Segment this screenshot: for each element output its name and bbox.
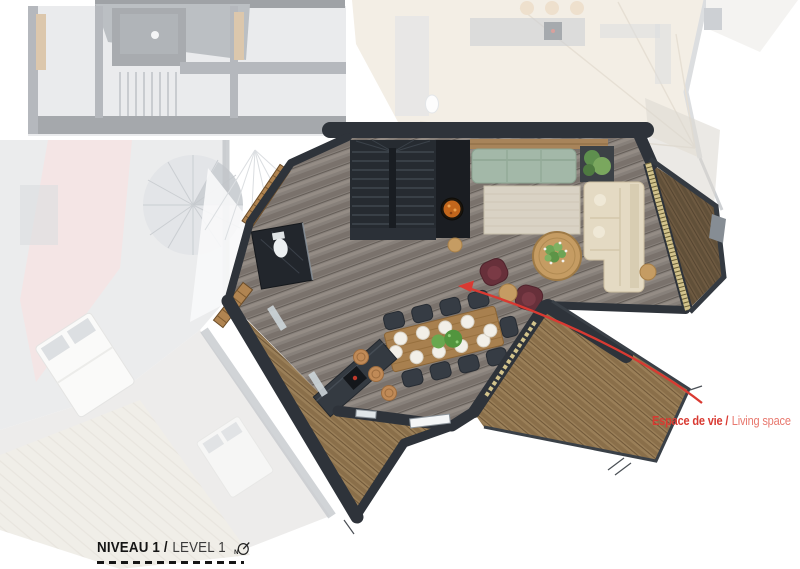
rug bbox=[484, 186, 580, 234]
faded-window-shelf bbox=[234, 12, 244, 60]
wc-room bbox=[251, 223, 312, 289]
floor-plan-canvas bbox=[0, 0, 800, 569]
floor-plan-page: { "document": { "type": "architectural-f… bbox=[0, 0, 800, 569]
green-sofa bbox=[472, 149, 576, 183]
coffee-table bbox=[533, 232, 581, 280]
side-stool bbox=[448, 238, 462, 252]
bay-window bbox=[356, 410, 377, 419]
north-letter: N bbox=[234, 549, 239, 556]
faded-window-shelf bbox=[36, 14, 46, 70]
annotation-label-fr: Espace de vie / bbox=[652, 414, 728, 428]
north-arrow-icon: N bbox=[233, 540, 251, 557]
fireplace bbox=[436, 140, 470, 238]
living-space-annotation: Espace de vie /Living space bbox=[652, 414, 791, 428]
fire-bowl bbox=[444, 201, 461, 218]
indoor-planter bbox=[580, 146, 614, 182]
side-stool bbox=[640, 264, 656, 280]
title-dashed-underline bbox=[97, 561, 244, 564]
staircase bbox=[350, 140, 436, 240]
balcony-bracket bbox=[709, 214, 726, 243]
level-title-fr: NIVEAU 1 / bbox=[97, 540, 168, 556]
annotation-label-en: Living space bbox=[732, 414, 791, 428]
level-title-en: LEVEL 1 bbox=[172, 540, 225, 556]
faded-toilet bbox=[426, 95, 439, 113]
title-block: NIVEAU 1 / LEVEL 1 N bbox=[97, 538, 265, 564]
